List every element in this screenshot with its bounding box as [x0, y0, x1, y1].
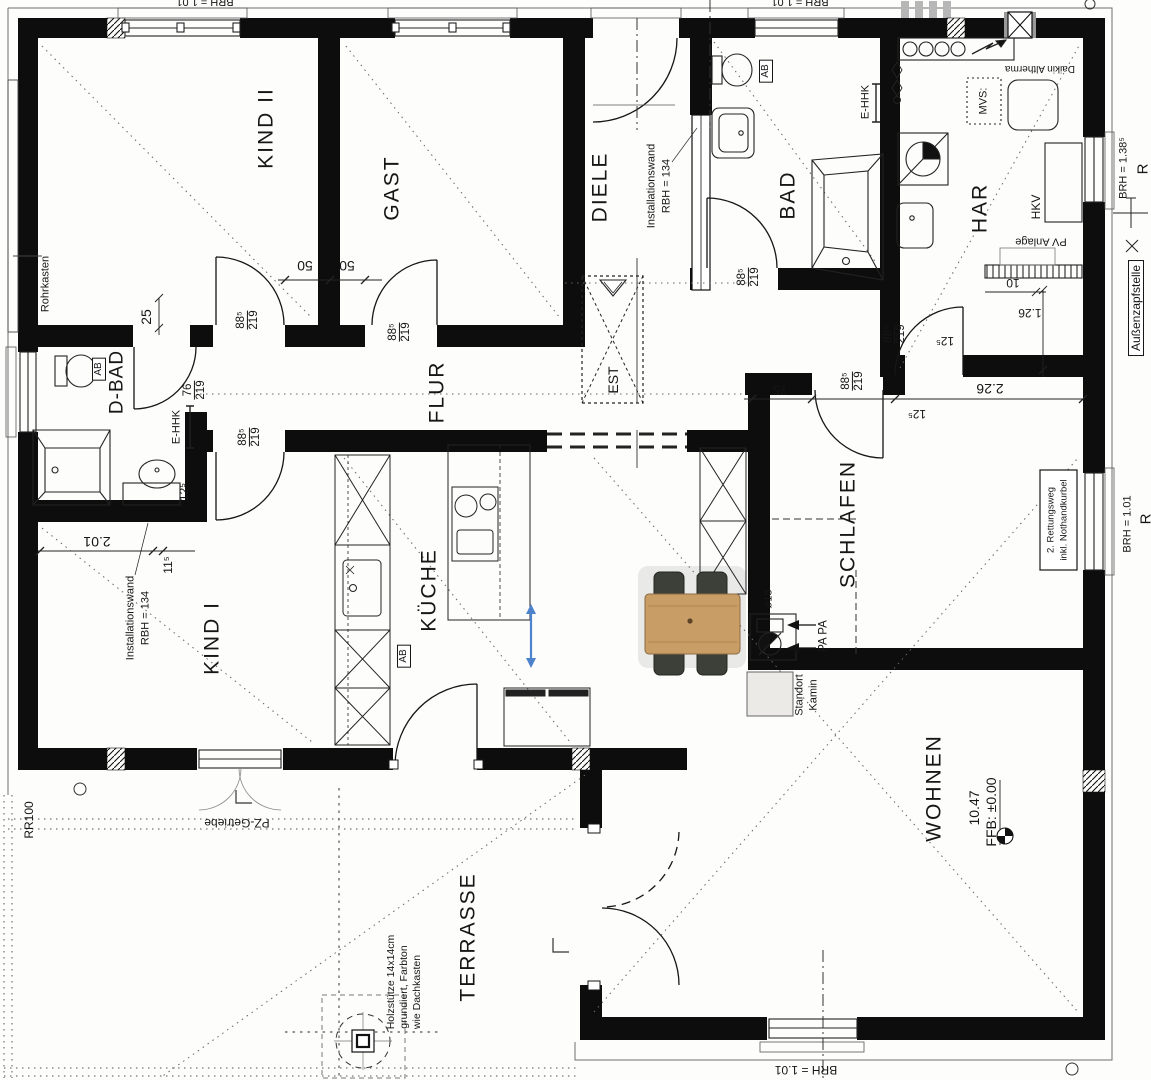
room-label-har: HAR: [970, 183, 991, 233]
room-label-kueche: KÜCHE: [419, 548, 440, 632]
area-diagonals: [42, 42, 1080, 1078]
dining-table-photo: [638, 566, 746, 675]
holzstuetze-line2: grundiert, Farbton: [399, 945, 410, 1028]
daikin-label: Daikin Altherma: [1005, 63, 1075, 73]
rettungsweg-line1: 2. Rettungsweg: [1046, 487, 1056, 553]
floor-plan: KIND II GAST DIELE BAD HAR D-BAD FLUR KI…: [0, 0, 1151, 1080]
wohnen-area-label: 10.47: [967, 790, 981, 825]
room-label-flur: FLUR: [427, 361, 448, 424]
dim-126: 1.26: [1018, 307, 1041, 319]
dim-201: 2.01: [83, 535, 110, 549]
ehhk-dbad-label: E-HHK: [172, 410, 183, 444]
dim-door-kind2: 88⁵219: [232, 310, 260, 329]
brh-top-left-label: BRH = 1.01: [176, 0, 233, 7]
rbh134-bad-label: RBH = 134: [662, 159, 673, 213]
kamin-standort-square: [747, 672, 793, 716]
room-label-bad: BAD: [778, 170, 799, 219]
aussenzapfstelle-icon: [1113, 198, 1148, 252]
plan-linework: [0, 0, 1151, 1080]
hkv-label: HKV: [1030, 195, 1042, 220]
ffb-label: FFB: ±0.00: [984, 777, 998, 846]
rohrkasten-label: Rohrkasten: [41, 256, 52, 312]
ab-bad-label: AB: [759, 59, 773, 82]
d18-label: ø18: [764, 590, 775, 609]
dim-75: 75: [773, 384, 787, 397]
room-label-kind2: KIND II: [256, 87, 277, 169]
dim-115: 11⁵: [162, 556, 174, 573]
dim-10: 10: [1006, 277, 1019, 289]
installationswand-left-label: Installationswand: [126, 576, 137, 660]
chimney-vent-icon: [1004, 12, 1036, 38]
dim-door-schlafen: 88⁵219: [837, 371, 865, 390]
ehhk-har-label: E-HHK: [861, 85, 872, 119]
rr100-label: RR100: [23, 801, 35, 838]
terrace-lines: [4, 788, 578, 1080]
r-label-138: R: [1136, 164, 1151, 175]
dim-125-har: 12⁵: [936, 335, 954, 347]
level-mark: [997, 780, 1013, 845]
holzstuetze-line3: wie Dachkasten: [412, 955, 423, 1029]
kamin-label: Kamin: [809, 679, 820, 710]
pv-anlage-label: PV Anlage: [1015, 236, 1066, 247]
grating-stripes: [901, 1, 951, 18]
brh138-label: BRH = 1.38⁵: [1119, 137, 1130, 199]
standort-label: Standort: [795, 674, 806, 716]
papa-label: PA PA: [818, 620, 830, 652]
installation-wall: [672, 115, 710, 290]
pz-getriebe-label: PZ-Getriebe: [204, 817, 269, 829]
ehhk-bracket: [872, 84, 880, 122]
room-label-dbad: D-BAD: [108, 350, 127, 414]
dim-door-dbad: 76219: [179, 380, 207, 399]
room-label-gast: GAST: [382, 155, 403, 220]
installationswand-bad-label: Installationswand: [647, 144, 658, 228]
blue-arrow: [526, 604, 536, 668]
r-label-101: R: [1139, 514, 1151, 525]
dim-door-kind1: 88⁵219: [234, 427, 262, 446]
brh101-right-label: BRH = 1.01: [1123, 495, 1134, 552]
walls: [18, 18, 1105, 1040]
mvs-label: MVS:: [979, 88, 990, 115]
rettungsweg-line2: inkl. Nothandkurbel: [1059, 479, 1069, 560]
downpipe-icon: [1066, 1063, 1078, 1075]
room-label-kind1: KIND I: [202, 601, 223, 675]
dim-50-a: 50: [297, 259, 313, 273]
dim-door-har: 88⁵219: [879, 324, 907, 343]
room-label-wohnen: WOHNEN: [924, 734, 945, 842]
ab-dbad-label: AB: [92, 357, 106, 380]
est-label: EST: [606, 366, 620, 393]
dim-25: 25: [139, 309, 153, 325]
dim-door-bad: 88⁵219: [733, 267, 761, 286]
terrace-mark-2: [553, 938, 569, 952]
dim-125-dbad: 12⁵: [178, 483, 190, 501]
aussenzapfstelle-label: Außenzapfstelle: [1128, 260, 1144, 356]
dim-125-schlafen: 12⁵: [908, 408, 926, 420]
rbh134-left-label: RBH = 134: [141, 591, 152, 645]
brh101-bottom-label: BRH = 1.01: [775, 1064, 837, 1076]
room-label-terrasse: TERRASSE: [458, 872, 479, 1001]
holzstuetze-line1: Holzstütze 14x14cm: [386, 935, 397, 1030]
bad-fixtures: [712, 54, 883, 280]
ab-kueche-label: AB: [397, 644, 411, 667]
pa-arrows: [787, 620, 816, 653]
brh-top-right-label: BRH = 1.01: [771, 0, 828, 7]
room-label-schlafen: SCHLAFEN: [838, 460, 859, 588]
room-label-diele: DIELE: [590, 152, 611, 223]
rr100-pipe-icon: [74, 783, 86, 795]
roof-outline: [8, 8, 1112, 1060]
dim-226: 2.26: [976, 382, 1003, 396]
dim-50-b: 50: [339, 259, 355, 273]
pass-lintel: [547, 434, 687, 447]
dim-door-gast: 88⁵219: [384, 322, 412, 341]
